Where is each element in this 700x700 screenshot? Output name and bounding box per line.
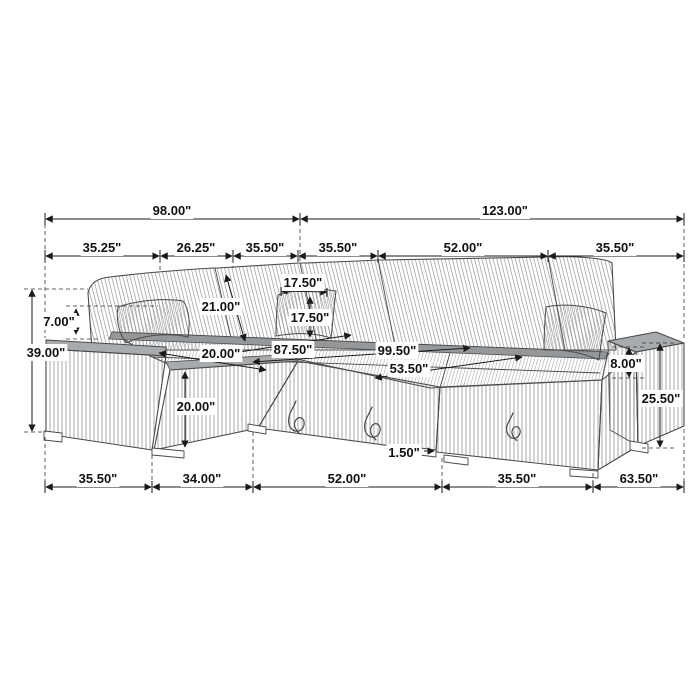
sofa-leg [444,455,468,465]
dim-label-top-s4: 35.50" [319,240,358,255]
dim-label-top-s1: 35.25" [83,240,122,255]
dim-label-bottom-s4: 35.50" [498,471,537,486]
dim-label-bottom-s1: 35.50" [79,471,118,486]
dim-label-top-s2: 26.25" [177,240,216,255]
dim-label-bed-length: 87.50" [274,342,313,357]
sofa-dimension-diagram: 98.00" 123.00" 35.25" 26.25" 35.50" 35.5… [0,0,700,700]
dim-label-top-s6: 35.50" [596,240,635,255]
left-armrest-front [46,349,166,450]
sofa-leg [420,448,436,457]
dim-label-seat-height: 20.00" [177,399,216,414]
dim-label-bed-diagonal: 99.50" [378,343,417,358]
dim-label-overall-left: 98.00" [153,203,192,218]
dim-label-bottom-s2: 34.00" [183,471,222,486]
dim-label-pillow-width: 17.50" [284,275,323,290]
dim-label-bottom-s3: 52.00" [328,471,367,486]
sofa-illustration [44,257,684,478]
dim-label-back-above-arm: 7.00" [43,314,74,329]
sofa-leg [44,431,62,442]
dim-label-bottom-s5: 63.50" [620,471,659,486]
dim-label-back-cushion: 21.00" [202,299,241,314]
sofa-leg [570,469,598,478]
dim-label-pillow-height: 17.50" [291,310,330,325]
dim-label-overall-height: 39.00" [27,345,66,360]
sofa-leg [152,448,184,458]
sofa-dimension-svg: 98.00" 123.00" 35.25" 26.25" 35.50" 35.5… [0,0,700,700]
dim-label-bed-width: 53.50" [390,361,429,376]
dim-label-top-s5: 52.00" [444,240,483,255]
dim-label-arm-height: 25.50" [642,391,681,406]
dim-label-leg-height: 1.50" [388,445,419,460]
bed-front-panel-right [436,380,602,470]
dim-label-seat-depth: 20.00" [202,346,241,361]
dim-label-arm-above-seat: 8.00" [610,356,641,371]
dim-label-overall-right: 123.00" [482,203,528,218]
dim-label-top-s3: 35.50" [246,240,285,255]
